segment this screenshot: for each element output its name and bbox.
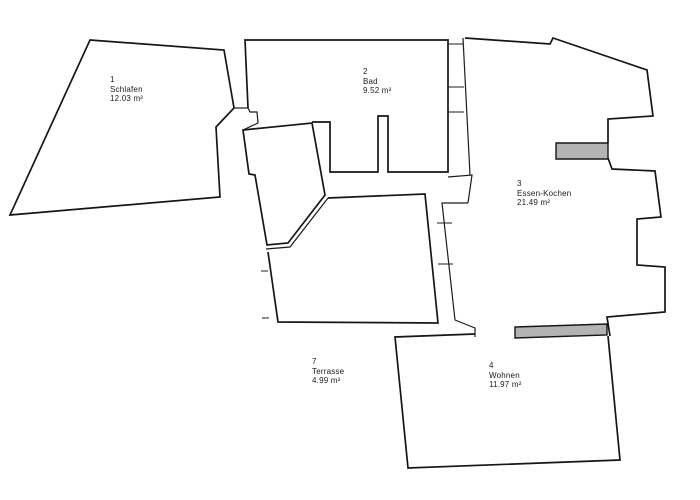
room-area: 9.52 m² <box>363 86 392 96</box>
window-bar-lower <box>515 324 607 338</box>
room-area: 4.99 m² <box>312 376 344 386</box>
room-label-terrasse: 7 Terrasse 4.99 m² <box>312 357 344 386</box>
room-number: 1 <box>110 75 143 85</box>
room-area: 21.49 m² <box>517 198 571 208</box>
room-schlafen-outline <box>10 40 234 215</box>
room-number: 2 <box>363 67 392 77</box>
room-essen-kochen-outline-top <box>465 38 653 143</box>
middle-room-outline <box>268 194 438 323</box>
hall-outline <box>243 123 325 245</box>
diagonal-wall-outer <box>266 198 328 249</box>
room-number: 7 <box>312 357 344 367</box>
floor-plan-drawing <box>0 0 700 500</box>
room-number: 3 <box>517 179 571 189</box>
room-bad-outline <box>245 40 448 172</box>
inner-wall <box>463 38 470 175</box>
room-area: 12.03 m² <box>110 94 143 104</box>
room-number: 4 <box>489 361 522 371</box>
room-name: Wohnen <box>489 371 522 381</box>
room-label-essen-kochen: 3 Essen-Kochen 21.49 m² <box>517 179 571 208</box>
room-wohnen-outline <box>395 334 620 468</box>
room-area: 11.97 m² <box>489 380 522 390</box>
floor-plan: 1 Schlafen 12.03 m² 2 Bad 9.52 m² 3 Esse… <box>0 0 700 500</box>
room-name: Terrasse <box>312 367 344 377</box>
room-label-bad: 2 Bad 9.52 m² <box>363 67 392 96</box>
room-label-schlafen: 1 Schlafen 12.03 m² <box>110 75 143 104</box>
room-essen-kochen-outline-bottom <box>607 158 665 336</box>
inner-wall <box>448 175 472 203</box>
room-name: Essen-Kochen <box>517 189 571 199</box>
room-label-wohnen: 4 Wohnen 11.97 m² <box>489 361 522 390</box>
room-name: Bad <box>363 77 392 87</box>
wall-steps <box>243 108 258 130</box>
room-name: Schlafen <box>110 85 143 95</box>
window-bar-upper <box>556 143 608 159</box>
